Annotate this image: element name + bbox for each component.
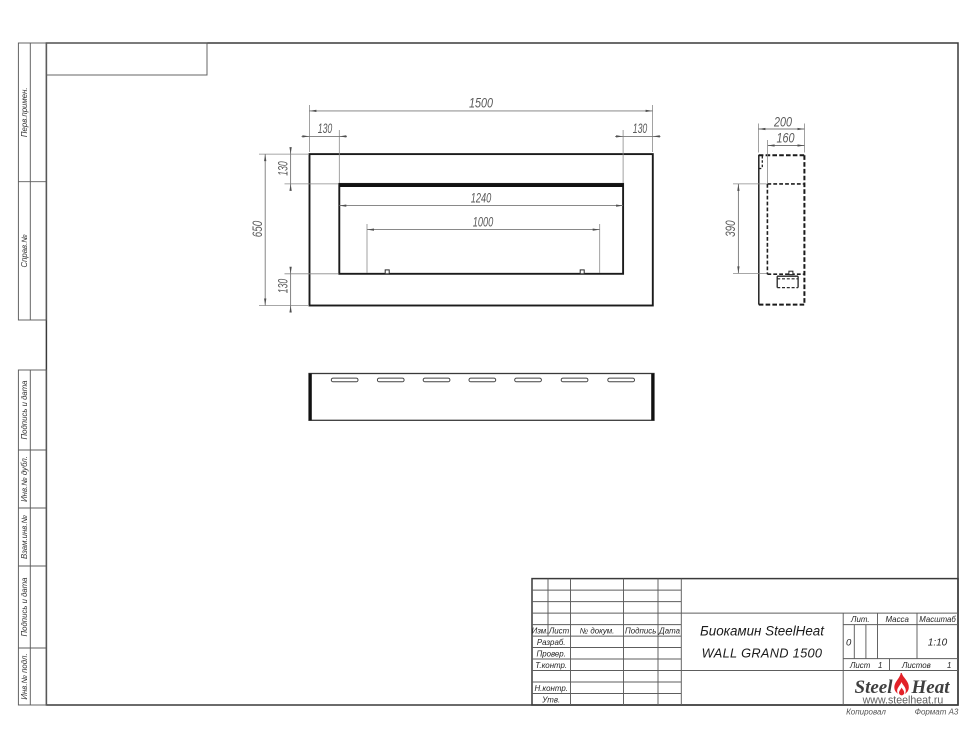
svg-text:Подпись: Подпись <box>625 627 656 636</box>
svg-text:Масса: Масса <box>886 615 910 624</box>
svg-text:№ докум.: № докум. <box>580 627 615 636</box>
svg-text:Провер.: Провер. <box>536 649 565 658</box>
svg-text:Лист: Лист <box>849 661 871 670</box>
svg-text:Подпись и дата: Подпись и дата <box>20 577 29 637</box>
svg-text:Утв.: Утв. <box>541 695 560 704</box>
svg-text:1000: 1000 <box>473 214 494 229</box>
svg-text:Формат А3: Формат А3 <box>915 708 959 717</box>
svg-text:390: 390 <box>723 220 738 237</box>
svg-text:200: 200 <box>773 114 792 129</box>
svg-text:Биокамин SteelHeat: Биокамин SteelHeat <box>700 624 825 639</box>
svg-text:130: 130 <box>318 121 333 136</box>
svg-text:Копировал: Копировал <box>846 708 886 717</box>
svg-text:Т.контр.: Т.контр. <box>535 661 567 670</box>
svg-text:0: 0 <box>846 638 852 649</box>
svg-text:Разраб.: Разраб. <box>537 638 566 647</box>
svg-text:1240: 1240 <box>471 190 492 205</box>
svg-text:Листов: Листов <box>901 661 931 670</box>
svg-text:WALL GRAND 1500: WALL GRAND 1500 <box>702 646 823 661</box>
svg-text:650: 650 <box>250 220 265 237</box>
svg-text:www.steelheat.ru: www.steelheat.ru <box>862 694 944 706</box>
svg-text:1:10: 1:10 <box>928 638 948 649</box>
svg-text:Взам.инв.№: Взам.инв.№ <box>20 515 29 559</box>
svg-text:Справ.№: Справ.№ <box>20 234 29 267</box>
svg-text:Подпись и дата: Подпись и дата <box>20 380 29 440</box>
svg-text:160: 160 <box>777 131 795 146</box>
svg-text:Изм.: Изм. <box>532 627 549 636</box>
svg-text:130: 130 <box>275 161 290 176</box>
svg-text:Инв.№ дубл.: Инв.№ дубл. <box>20 456 29 502</box>
svg-text:Перв.примен.: Перв.примен. <box>20 87 29 137</box>
svg-text:1: 1 <box>878 661 882 670</box>
svg-text:1500: 1500 <box>469 96 493 111</box>
svg-text:Лист: Лист <box>548 627 570 636</box>
svg-text:1: 1 <box>947 661 951 670</box>
svg-text:Инв.№ подл.: Инв.№ подл. <box>20 653 29 699</box>
svg-text:Дата: Дата <box>658 627 680 636</box>
svg-text:Лит.: Лит. <box>850 615 869 624</box>
svg-text:Масштаб: Масштаб <box>919 615 956 624</box>
svg-text:130: 130 <box>633 121 648 136</box>
svg-text:Н.контр.: Н.контр. <box>534 684 567 693</box>
svg-text:130: 130 <box>275 278 290 293</box>
